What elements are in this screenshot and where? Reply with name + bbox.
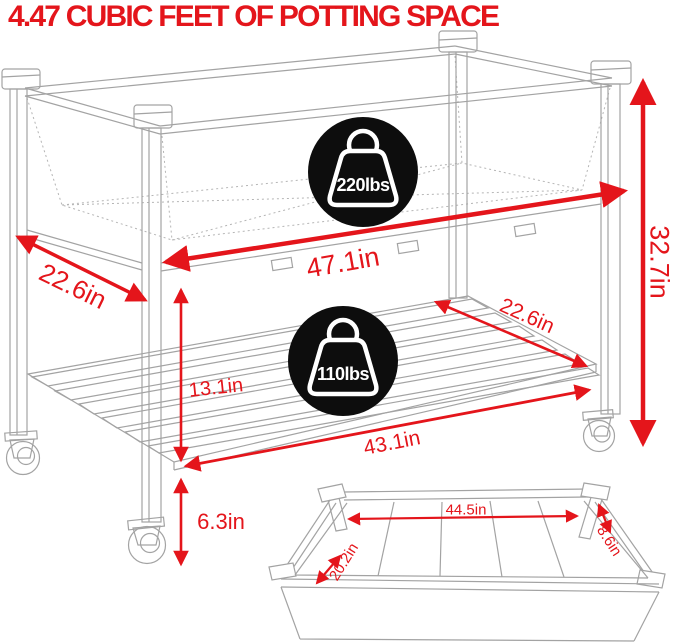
product-dimension-diagram: 4.47 CUBIC FEET OF POTTING SPACE 220lbs … <box>0 0 679 644</box>
weight-icon <box>308 117 418 227</box>
dim-ground-clearance-label: 6.3in <box>197 511 245 533</box>
caster-wheel-front-right <box>583 410 615 452</box>
weight-capacity-bottom-label: 110lbs <box>288 364 398 385</box>
caster-wheel-front-left <box>128 517 166 563</box>
caster-wheel-rear-left <box>5 431 40 475</box>
weight-icon <box>288 306 398 416</box>
page-title: 4.47 CUBIC FEET OF POTTING SPACE <box>8 0 568 34</box>
dim-overall-height-label: 32.7in <box>646 225 673 299</box>
dim-inset-length-label: 44.5in <box>446 503 487 518</box>
caster-wheels <box>5 410 615 564</box>
weight-capacity-badge-top: 220lbs <box>308 117 418 227</box>
weight-capacity-badge-bottom: 110lbs <box>288 306 398 416</box>
weight-capacity-top-label: 220lbs <box>308 175 418 196</box>
dim-bed-to-shelf-label: 13.1in <box>188 375 244 401</box>
